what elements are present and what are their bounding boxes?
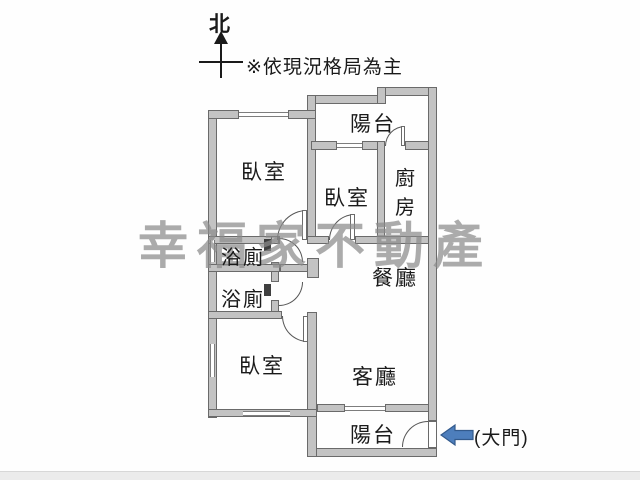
window [345, 406, 385, 411]
room-label-bath-lower: 浴廁 [221, 283, 265, 312]
room-label-bedroom-main: 臥室 [241, 156, 287, 186]
wall-segment [311, 95, 381, 104]
wall-segment [307, 312, 317, 457]
layout-disclaimer-note: ※依現況格局為主 [246, 52, 403, 79]
entrance-arrow-icon [440, 423, 474, 447]
room-label-balcony-bottom: 陽台 [350, 419, 396, 449]
door-leaf [428, 421, 437, 448]
room-label-bedroom-lower: 臥室 [239, 350, 285, 380]
entrance-arrow-shape [441, 425, 473, 445]
room-label-kitchen: 廚房 [395, 165, 419, 223]
room-label-living: 客廳 [352, 361, 398, 391]
room-label-dining: 餐廳 [372, 262, 418, 292]
agency-watermark: 幸福家不動產 [138, 206, 492, 278]
room-label-balcony-top: 陽台 [350, 108, 396, 138]
north-arrow-line [220, 42, 222, 78]
room-label-bath-upper: 浴廁 [221, 241, 265, 270]
window [337, 143, 362, 148]
window [243, 411, 290, 416]
room-label-bedroom-middle: 臥室 [324, 182, 370, 212]
wall-segment [288, 110, 316, 119]
window [239, 112, 288, 117]
wall-segment [405, 141, 429, 150]
floor-plan-canvas: 北 ※依現況格局為主 [0, 0, 640, 480]
wall-segment [385, 404, 429, 412]
wall-segment [377, 87, 386, 104]
bottom-edge-strip [0, 471, 640, 480]
window [210, 344, 215, 377]
wall-segment [311, 141, 337, 150]
north-arrow-cross-line [199, 61, 243, 63]
door-jamb [264, 284, 271, 296]
wall-segment [311, 448, 437, 457]
door-arc [402, 421, 428, 447]
wall-segment [208, 311, 282, 319]
door-leaf [401, 126, 405, 146]
entrance-label: (大門) [474, 423, 529, 450]
wall-segment [317, 404, 345, 412]
door-leaf [303, 316, 308, 342]
wall-segment [208, 110, 239, 119]
door-arc [279, 282, 303, 306]
